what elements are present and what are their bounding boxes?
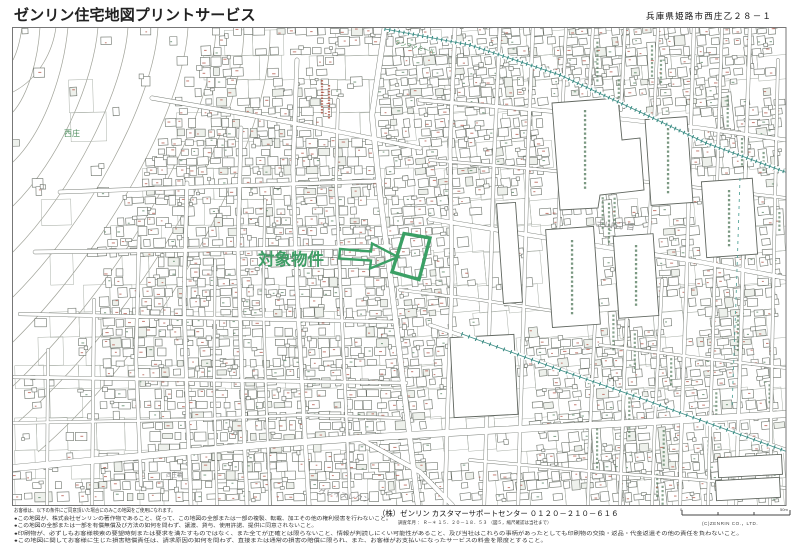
svg-text:西庄: 西庄 xyxy=(64,128,80,138)
svg-text:西王橋: 西王橋 xyxy=(166,471,183,479)
svg-text:50m: 50m xyxy=(780,507,788,512)
svg-text:対象物件: 対象物件 xyxy=(257,249,325,269)
svg-text:0: 0 xyxy=(680,507,683,512)
